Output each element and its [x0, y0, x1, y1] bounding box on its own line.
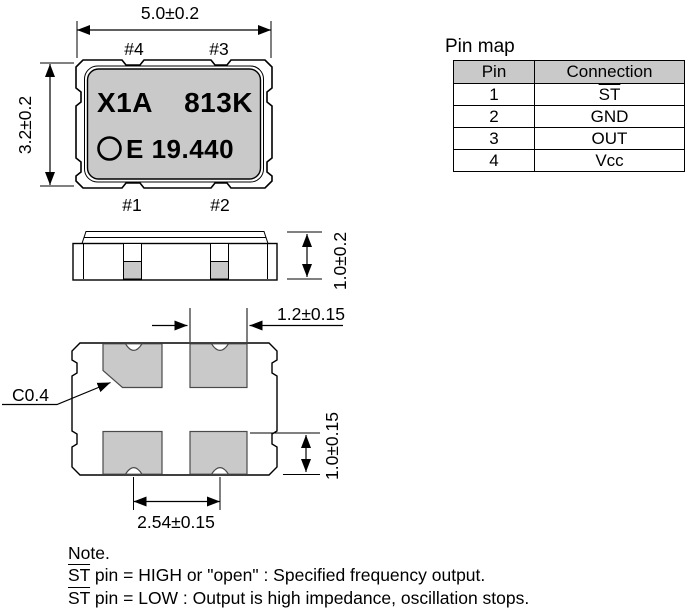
dim-height-label: 3.2±0.2: [15, 96, 35, 154]
col-header-pin: Pin: [454, 61, 535, 84]
pin-connection: GND: [535, 106, 685, 128]
top-view: 5.0±0.2 #4 #3 X1A 813K E 19.440 #1 #2 3.…: [15, 3, 272, 215]
pin2-label: #2: [210, 195, 229, 215]
pin1-label: #1: [122, 195, 141, 215]
pin-number: 4: [454, 150, 535, 172]
pin-number: 1: [454, 84, 535, 106]
dim-width-label: 5.0±0.2: [141, 3, 199, 23]
chamfer-label: C0.4: [12, 385, 49, 405]
table-row: 3 OUT: [454, 128, 685, 150]
table-header-row: Pin Connection: [454, 61, 685, 84]
pin-map-section: Pin map Pin Connection 1 ST 2 GND 3 OUT …: [445, 36, 685, 172]
table-row: 4 Vcc: [454, 150, 685, 172]
datasheet-page: 5.0±0.2 #4 #3 X1A 813K E 19.440 #1 #2 3.…: [0, 0, 692, 614]
pin-map-table: Pin Connection 1 ST 2 GND 3 OUT 4 Vcc: [453, 60, 685, 172]
note-title: Note.: [68, 542, 529, 564]
castellation-pad: [211, 262, 229, 280]
bottom-view: 1.2±0.15 C0.4 1.0±0.15: [2, 304, 345, 532]
body-profile: [73, 244, 277, 281]
note-text: pin = LOW : Output is high impedance, os…: [90, 588, 529, 608]
dim-pad-height-label: 1.0±0.15: [322, 412, 342, 480]
dim-extension-lines: [77, 21, 271, 58]
dim-thickness-label: 1.0±0.2: [330, 232, 350, 290]
castellation-pad: [124, 262, 142, 280]
marking-frequency: E 19.440: [126, 134, 234, 164]
st-overline-text: ST: [68, 588, 90, 608]
dim-pad-width-label: 1.2±0.15: [277, 304, 345, 324]
note-line-high: ST pin = HIGH or "open" : Specified freq…: [68, 564, 529, 586]
table-row: 1 ST: [454, 84, 685, 106]
note-line-low: ST pin = LOW : Output is high impedance,…: [68, 587, 529, 609]
pin4-label: #4: [124, 39, 144, 59]
marking-model: X1A: [97, 87, 153, 118]
pin-connection: ST: [535, 84, 685, 106]
note-section: Note. ST pin = HIGH or "open" : Specifie…: [68, 542, 529, 609]
marking-code: 813K: [184, 87, 253, 118]
dim-extension-lines: [134, 477, 221, 510]
pin3-label: #3: [209, 39, 228, 59]
note-text: pin = HIGH or "open" : Specified frequen…: [90, 565, 485, 585]
pin-number: 2: [454, 106, 535, 128]
pin-number: 3: [454, 128, 535, 150]
dim-extension-lines: [190, 308, 247, 342]
side-view: 1.0±0.2: [73, 232, 350, 291]
pin-connection: Vcc: [535, 150, 685, 172]
pin-connection: OUT: [535, 128, 685, 150]
col-header-connection: Connection: [535, 61, 685, 84]
st-overline-text: ST: [68, 565, 90, 585]
dim-pad-pitch-label: 2.54±0.15: [137, 512, 215, 532]
st-overline-text: ST: [599, 85, 621, 104]
pin-map-title: Pin map: [445, 36, 685, 57]
dim-extension-lines: [40, 63, 74, 186]
table-row: 2 GND: [454, 106, 685, 128]
dim-extension-lines: [287, 232, 322, 279]
